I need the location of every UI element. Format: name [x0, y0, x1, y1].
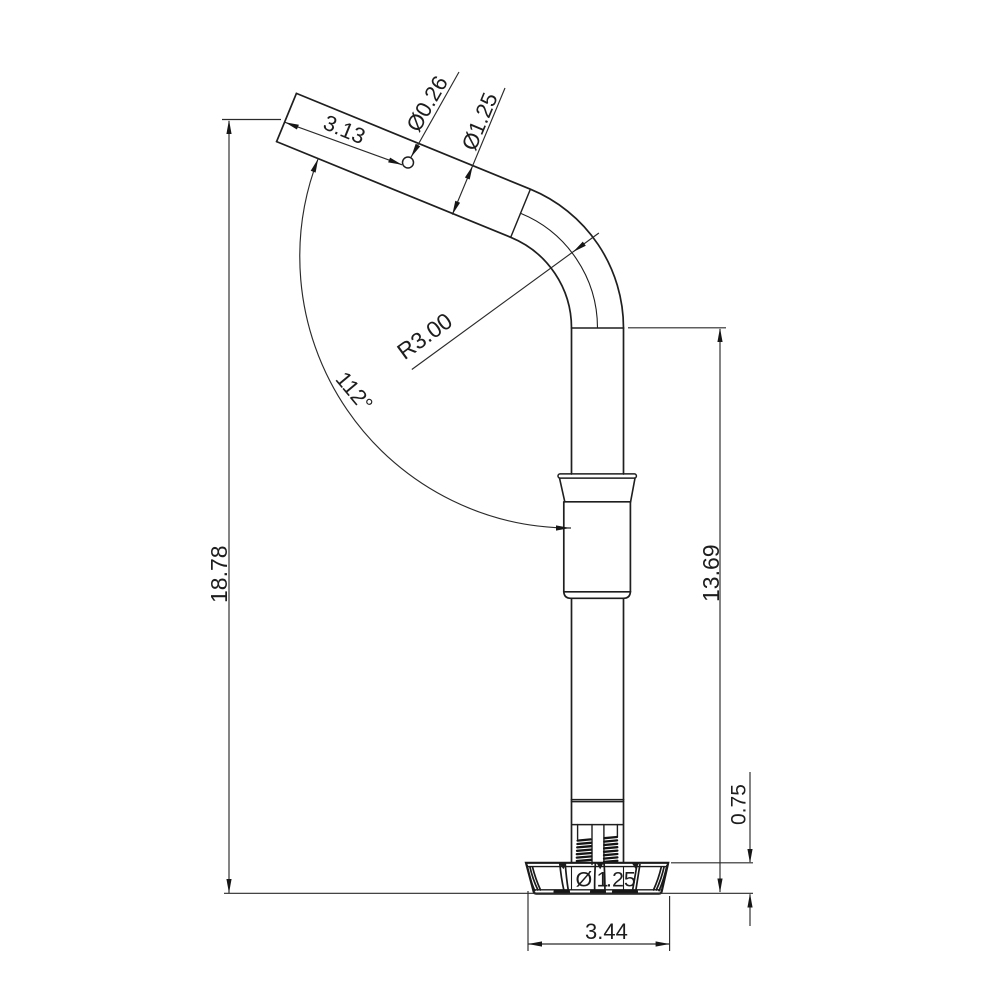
svg-text:18.78: 18.78 [206, 545, 232, 603]
svg-text:13.69: 13.69 [698, 544, 724, 602]
svg-text:.25: .25 [606, 867, 636, 891]
svg-text:3.44: 3.44 [585, 919, 628, 944]
svg-text:0.75: 0.75 [728, 784, 751, 825]
svg-text:Ø: Ø [576, 867, 593, 891]
